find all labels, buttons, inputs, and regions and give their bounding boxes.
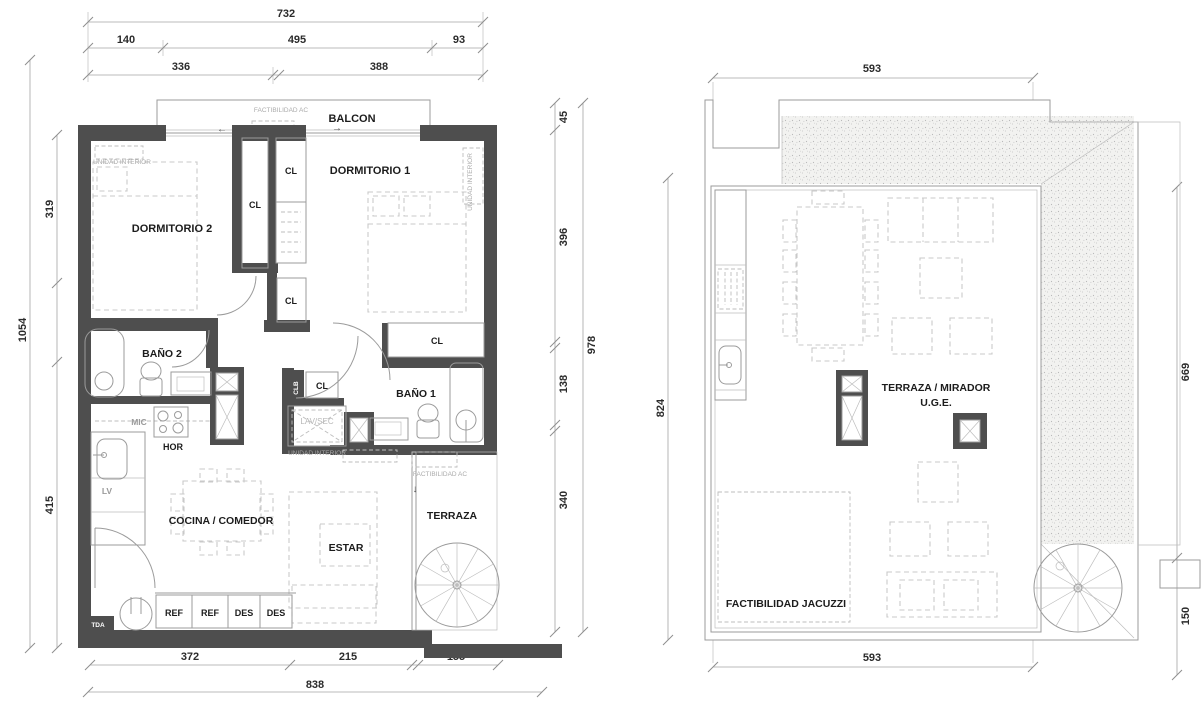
floorplan-sheet: 732 140 495 93 336 388 1054 319 415 45 3… bbox=[0, 0, 1202, 702]
dim-top-d: 336 bbox=[172, 61, 190, 73]
dim-top-total: 732 bbox=[277, 8, 295, 20]
toilet-bano1 bbox=[417, 420, 439, 438]
dim-top-e: 388 bbox=[370, 61, 388, 73]
toilet-bano2 bbox=[140, 378, 162, 396]
room-label-uge: U.G.E. bbox=[920, 397, 952, 409]
stair-landing bbox=[1160, 560, 1200, 588]
roof-band bbox=[782, 116, 1134, 638]
bed-dorm2 bbox=[93, 162, 197, 310]
terrace-shafts: TERRAZA / MIRADOR U.G.E. bbox=[836, 370, 991, 449]
dishwasher-label: LV bbox=[102, 486, 113, 496]
left-plan-dims-top: 732 140 495 93 336 388 bbox=[83, 8, 488, 84]
spiral-stair-unit bbox=[415, 543, 499, 627]
room-label-bano2: BAÑO 2 bbox=[142, 347, 182, 360]
bed-dorm1 bbox=[368, 192, 466, 312]
dim-top-c: 93 bbox=[453, 34, 465, 46]
ac-indoor-unit-dorm2 bbox=[95, 146, 143, 159]
window-swing-arrow-right: → bbox=[332, 123, 342, 134]
pantry2-label: DES bbox=[267, 608, 286, 618]
dim-left-a: 319 bbox=[44, 200, 56, 218]
closet-label-bano1: CL bbox=[431, 336, 443, 346]
room-label-dormitorio2: DORMITORIO 2 bbox=[132, 223, 212, 235]
dim-right-a: 45 bbox=[558, 111, 570, 123]
dim-top-a: 140 bbox=[117, 34, 135, 46]
dim-right-c: 138 bbox=[558, 375, 570, 393]
unidad-interior-dorm2-label: UNIDAD INTERIOR bbox=[93, 159, 151, 166]
dim-right-b: 396 bbox=[558, 228, 570, 246]
terrace-furniture bbox=[783, 191, 997, 617]
dim-top-b: 495 bbox=[288, 34, 306, 46]
jacuzzi-zone: FACTIBILIDAD JACUZZI bbox=[718, 492, 850, 622]
dining-table bbox=[183, 481, 261, 541]
window-swing-arrow-left: ← bbox=[217, 124, 227, 135]
door-arc-dorm2 bbox=[217, 276, 256, 315]
tda-label: TDA bbox=[91, 622, 105, 629]
closet-label-top: CL bbox=[285, 166, 297, 176]
unidad-interior-estar-label: UNIDAD INTERIOR bbox=[288, 450, 346, 457]
terraza-zone: FACTIBILIDAD AC ↓ TERRAZA bbox=[412, 452, 499, 630]
dormitorio2-furniture: UNIDAD INTERIOR DORMITORIO 2 bbox=[93, 146, 212, 310]
cooktop bbox=[154, 407, 188, 437]
washer-dryer-label: LAV/SEC bbox=[300, 417, 333, 426]
fridge2-label: REF bbox=[201, 608, 220, 618]
down-arrow: ↓ bbox=[413, 484, 418, 495]
terrace-coffee-table bbox=[920, 258, 962, 298]
factibilidad-ac-terraza-label: FACTIBILIDAD AC bbox=[413, 471, 467, 478]
terrace-counter bbox=[715, 190, 746, 400]
terrace-sofa bbox=[888, 198, 993, 242]
unidad-interior-dorm1-label: UNIDAD INTERIOR bbox=[467, 153, 474, 211]
room-label-bano1: BAÑO 1 bbox=[396, 387, 436, 400]
grill bbox=[718, 269, 743, 309]
factibilidad-ac-balcon-label: FACTIBILIDAD AC bbox=[254, 107, 308, 114]
laundry-tub bbox=[120, 598, 152, 630]
unit-walls bbox=[78, 125, 562, 658]
spiral-stair-roof bbox=[1034, 544, 1122, 632]
closet-label-lower: CL bbox=[285, 296, 297, 306]
dim-left-b: 415 bbox=[44, 496, 56, 514]
dining-furniture: COCINA / COMEDOR bbox=[169, 469, 274, 555]
left-plan-dims-left: 1054 319 415 bbox=[17, 55, 62, 653]
closet-label-lavsec: CL bbox=[316, 381, 328, 391]
left-plan-dims-right: 45 396 138 340 978 bbox=[550, 98, 598, 637]
dim-bottom-a: 372 bbox=[181, 651, 199, 663]
door-arc-entry bbox=[95, 528, 155, 588]
dim-rp-right-b: 150 bbox=[1180, 607, 1192, 625]
dim-right-total: 978 bbox=[586, 336, 598, 354]
door-arc-bano1 bbox=[333, 323, 390, 380]
room-label-terraza-mirador: TERRAZA / MIRADOR bbox=[882, 382, 991, 394]
dim-rp-bottom: 593 bbox=[863, 652, 881, 664]
dim-rp-top: 593 bbox=[863, 63, 881, 75]
bano2-fixtures: BAÑO 2 bbox=[85, 329, 211, 397]
room-label-dormitorio1: DORMITORIO 1 bbox=[330, 165, 410, 177]
estar-furniture: ESTAR bbox=[289, 492, 377, 623]
room-label-estar: ESTAR bbox=[329, 542, 364, 554]
microwave-label: MIC bbox=[131, 417, 147, 427]
factibilidad-jacuzzi-label: FACTIBILIDAD JACUZZI bbox=[726, 598, 846, 610]
kitchen-sink bbox=[97, 439, 127, 479]
right-plan: 593 593 824 669 150 bbox=[655, 63, 1200, 680]
dim-bottom-total: 838 bbox=[306, 679, 324, 691]
pantry1-label: DES bbox=[235, 608, 254, 618]
dim-rp-right-a: 669 bbox=[1180, 363, 1192, 381]
floorplan-canvas: 732 140 495 93 336 388 1054 319 415 45 3… bbox=[0, 0, 1202, 702]
dim-left-total: 1054 bbox=[17, 317, 29, 342]
bano1-fixtures: BAÑO 1 bbox=[370, 363, 483, 442]
left-plan: 732 140 495 93 336 388 1054 319 415 45 3… bbox=[17, 8, 598, 697]
kitchen-shaft bbox=[210, 367, 244, 445]
oven-label: HOR bbox=[163, 442, 184, 452]
closet-label-small: CLB bbox=[293, 381, 300, 395]
room-label-terraza: TERRAZA bbox=[427, 510, 478, 522]
dim-rp-left: 824 bbox=[655, 398, 667, 417]
closet-label-tall: CL bbox=[249, 200, 261, 210]
dim-bottom-b: 215 bbox=[339, 651, 357, 663]
dim-right-d: 340 bbox=[558, 491, 570, 509]
fridge1-label: REF bbox=[165, 608, 184, 618]
dormitorio1-furniture: UNIDAD INTERIOR DORMITORIO 1 bbox=[330, 148, 483, 312]
room-label-cocina: COCINA / COMEDOR bbox=[169, 515, 274, 527]
appliance-row: REF REF DES DES TDA bbox=[82, 593, 296, 632]
terrace-dining-table bbox=[797, 207, 863, 345]
vanity-bano1 bbox=[370, 418, 408, 440]
